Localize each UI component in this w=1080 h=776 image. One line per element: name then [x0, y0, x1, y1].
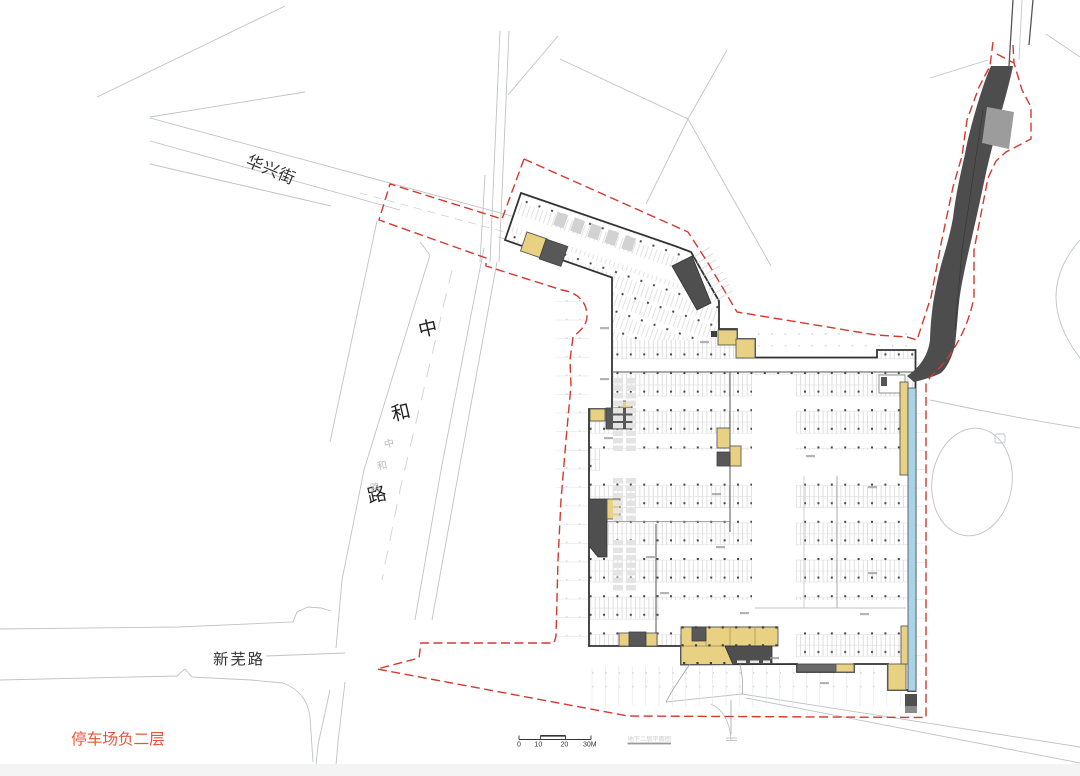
svg-text:30M: 30M — [583, 742, 597, 749]
svg-text:20: 20 — [561, 742, 569, 749]
svg-text:0: 0 — [517, 742, 521, 749]
svg-text:10: 10 — [535, 742, 543, 749]
